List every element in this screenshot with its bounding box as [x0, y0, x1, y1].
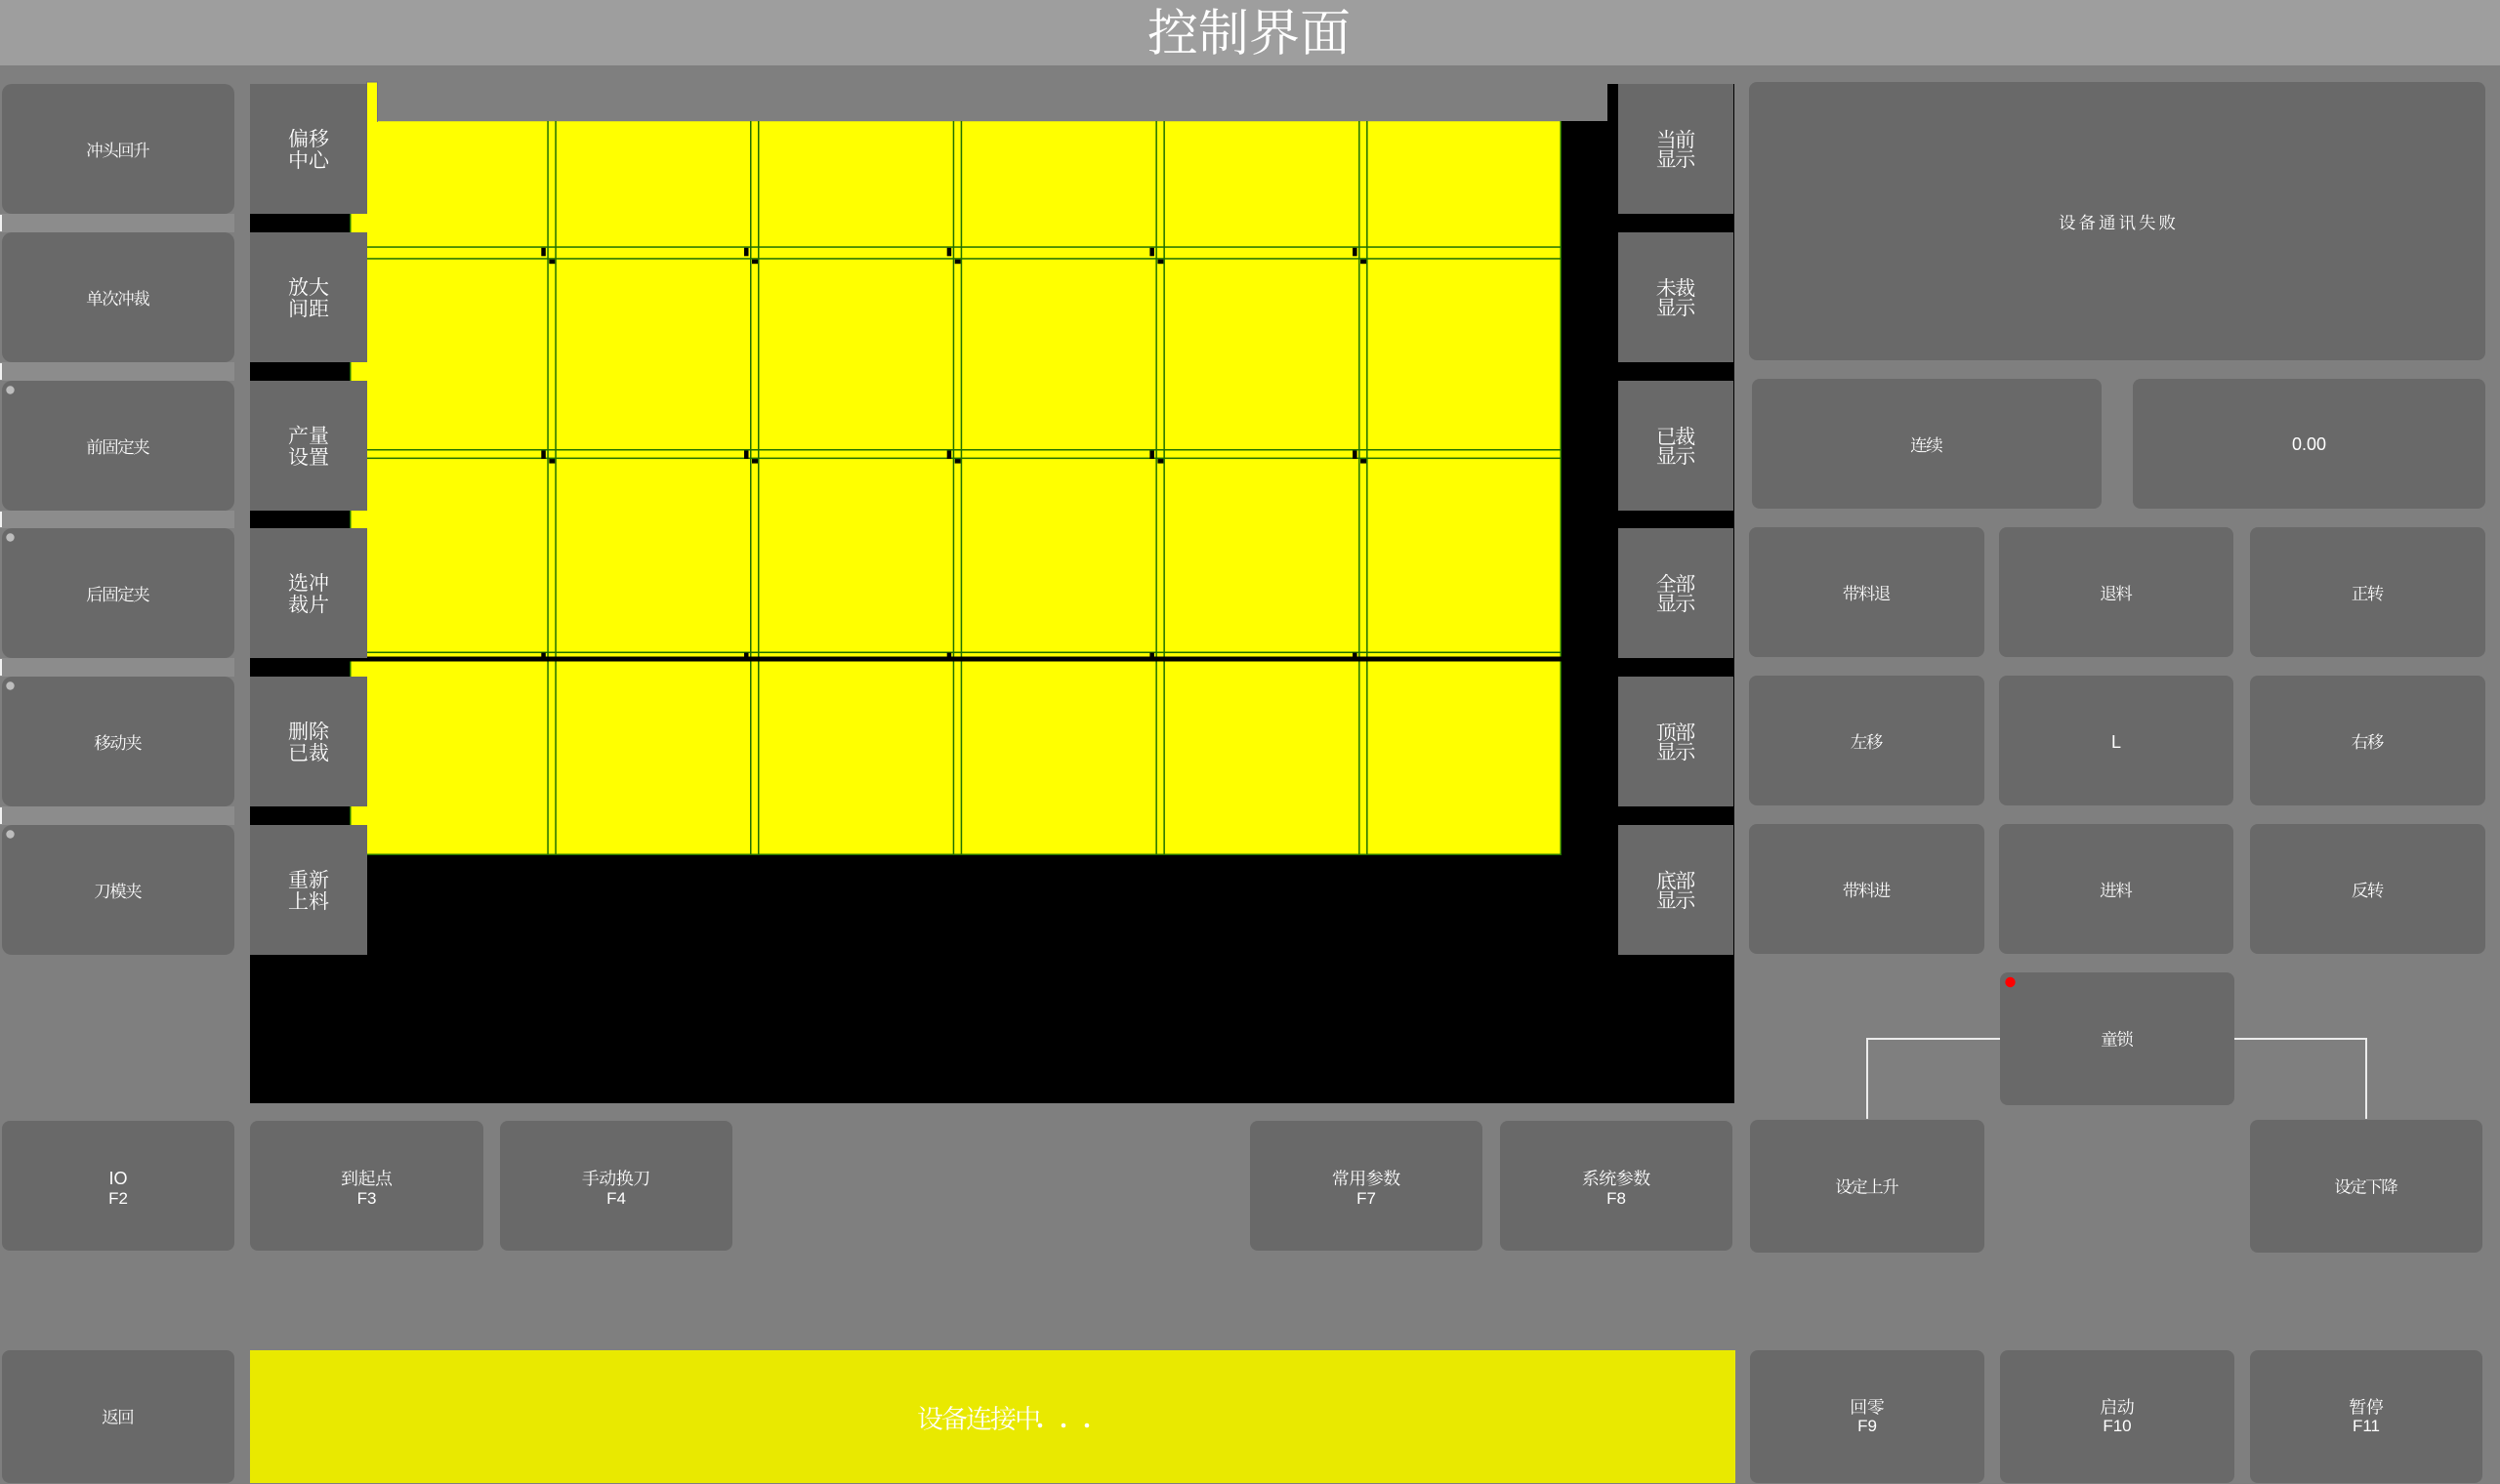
- svg-text:F9: F9: [1857, 1417, 1877, 1435]
- svg-text:F8: F8: [1606, 1189, 1626, 1208]
- svg-text:F2: F2: [108, 1189, 128, 1208]
- svg-text:F3: F3: [357, 1189, 377, 1208]
- svg-text:F11: F11: [2353, 1417, 2380, 1435]
- svg-text:0.00: 0.00: [2292, 434, 2326, 454]
- svg-text:F7: F7: [1356, 1189, 1376, 1208]
- svg-text:F10: F10: [2103, 1417, 2131, 1435]
- svg-text:F4: F4: [606, 1189, 626, 1208]
- svg-text:L: L: [2111, 732, 2121, 752]
- svg-text:IO: IO: [108, 1169, 127, 1188]
